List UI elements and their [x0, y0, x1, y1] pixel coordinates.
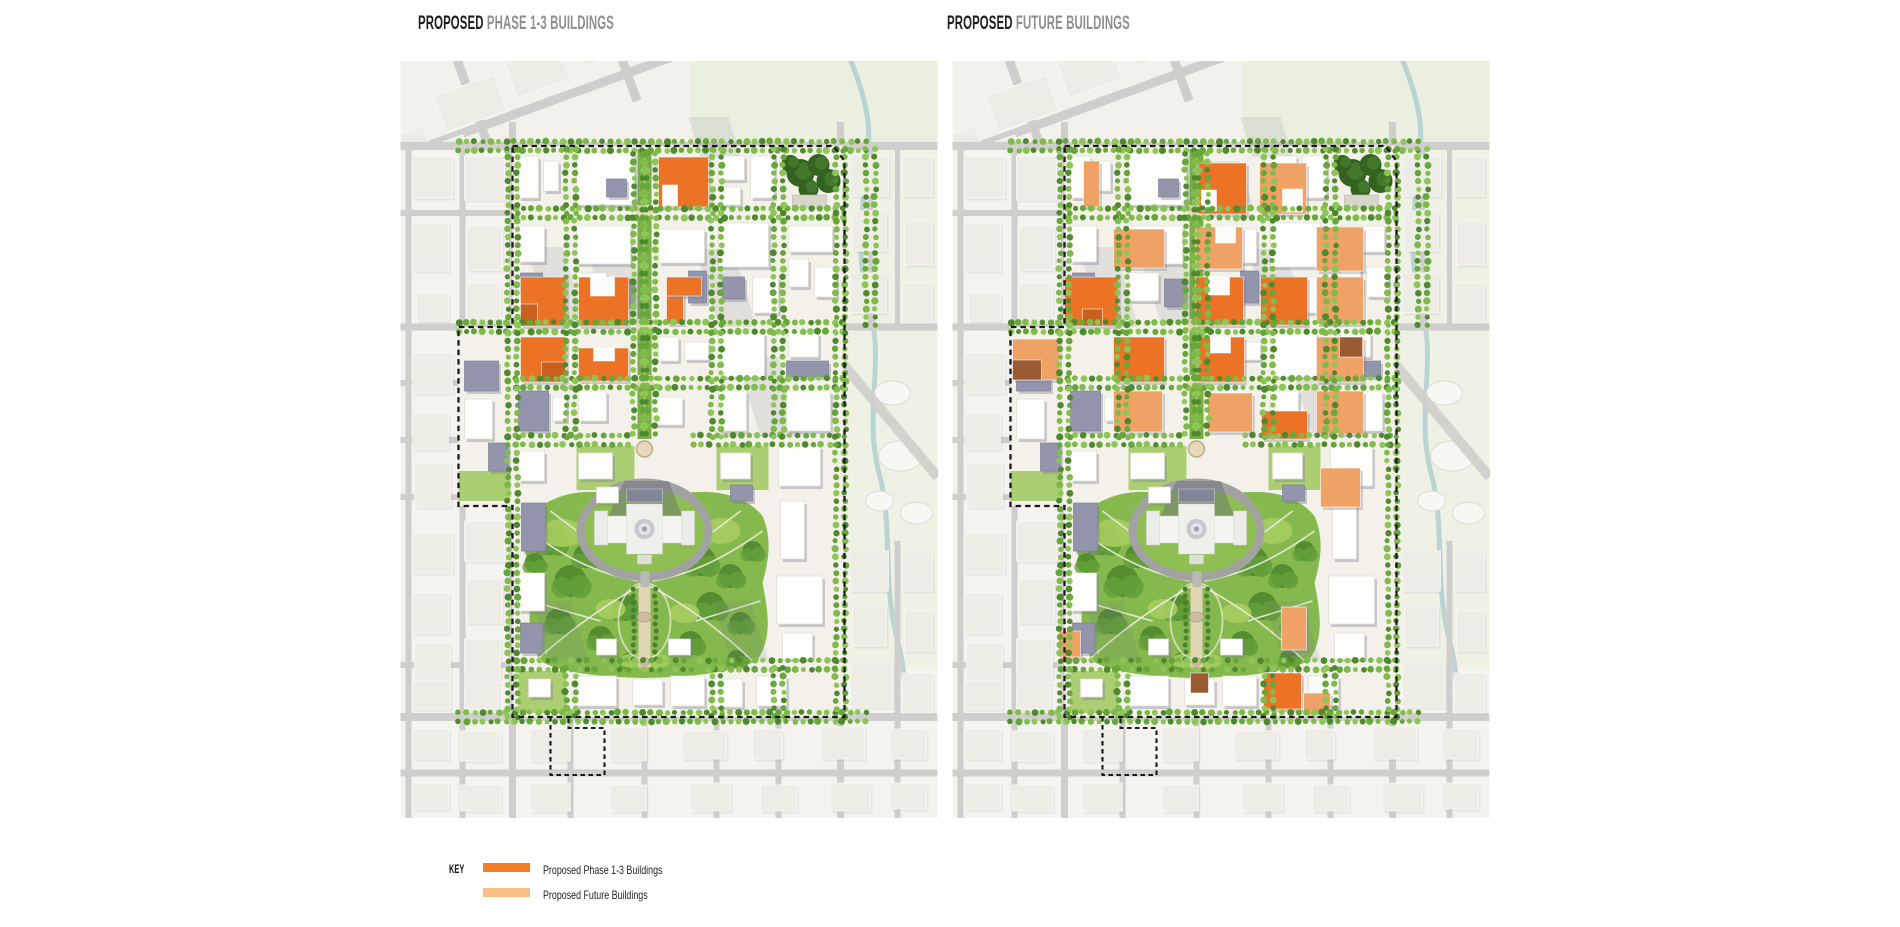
right-map-title: PROPOSED FUTURE BUILDINGS — [947, 13, 1130, 39]
left-map-title: PROPOSED PHASE 1-3 BUILDINGS — [418, 13, 614, 39]
left-title-bold: PROPOSED — [418, 13, 484, 34]
right-title-rest: FUTURE BUILDINGS — [1013, 13, 1130, 34]
phase-1-3-site-plan — [400, 61, 938, 818]
key-text-phase: Proposed Phase 1-3 Buildings — [543, 863, 662, 877]
key-text-future: Proposed Future Buildings — [543, 888, 648, 902]
right-title-bold: PROPOSED — [947, 13, 1013, 34]
proposed-phase-1-3-map — [400, 61, 938, 818]
page: PROPOSED PHASE 1-3 BUILDINGS PROPOSED FU… — [0, 0, 1900, 927]
proposed-future-map — [952, 61, 1490, 818]
left-title-rest: PHASE 1-3 BUILDINGS — [484, 13, 614, 34]
map-key: KEY Proposed Phase 1-3 Buildings Propose… — [449, 858, 849, 908]
key-label: KEY — [449, 862, 464, 876]
key-swatch-future — [483, 888, 530, 897]
future-site-plan — [952, 61, 1490, 818]
key-swatch-phase — [483, 863, 530, 872]
